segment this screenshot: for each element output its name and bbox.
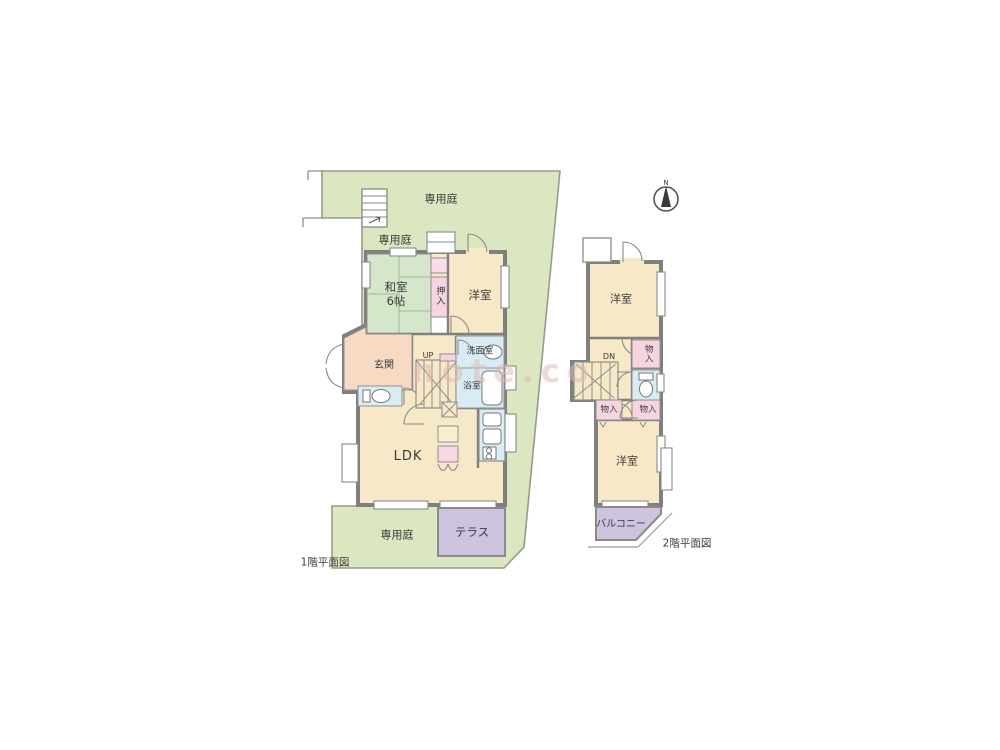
closet-upper xyxy=(431,258,448,273)
kitchen-sink-icon xyxy=(483,413,501,426)
ldk-bay-window xyxy=(342,444,358,482)
toilet2-tank-icon xyxy=(639,373,653,380)
bathroom xyxy=(456,368,504,408)
terrace-area xyxy=(438,508,505,556)
staircase-2f xyxy=(574,362,618,400)
floor2-plan xyxy=(572,238,672,547)
toilet2-bowl-icon xyxy=(640,381,653,397)
floorplan-drawing xyxy=(0,0,1000,750)
cabinet-cream xyxy=(438,426,458,442)
kitchen-window-bump xyxy=(505,414,516,452)
monoire-top-closet xyxy=(632,340,660,368)
hall-hatch xyxy=(442,402,457,417)
door-gap-2f xyxy=(620,258,644,266)
balcony-area xyxy=(596,507,661,540)
toilet-tank-icon xyxy=(363,390,370,402)
floor1-plan xyxy=(303,171,560,568)
entrance-door-arcs xyxy=(326,344,344,388)
toilet-bowl-icon xyxy=(372,390,390,403)
cabinet-pink xyxy=(438,446,458,462)
floorplan-page: note.co 専用庭 専用庭 和室 6帖 押入 洋室 玄関 UP 洗面室 浴室… xyxy=(0,0,1000,750)
oshiire-closet xyxy=(431,277,448,317)
balcony-box-2f xyxy=(583,238,611,262)
kitchen-counter xyxy=(479,409,505,461)
compass-needle xyxy=(661,186,671,207)
bath-window-bump xyxy=(505,366,516,390)
monoire-right-closet xyxy=(632,400,660,420)
bathtub-icon xyxy=(482,371,502,405)
washroom xyxy=(456,336,504,368)
sink-icon xyxy=(484,345,502,359)
window-bump-2f xyxy=(661,448,672,490)
washitsu-room xyxy=(367,254,431,334)
closet-lower xyxy=(431,317,448,334)
genkan-area xyxy=(344,327,412,390)
top-door-gap xyxy=(466,248,489,256)
garden-stairs xyxy=(362,189,387,227)
monoire-left-closet xyxy=(596,400,622,420)
compass-icon xyxy=(654,186,678,211)
staircase-1f xyxy=(416,354,456,408)
